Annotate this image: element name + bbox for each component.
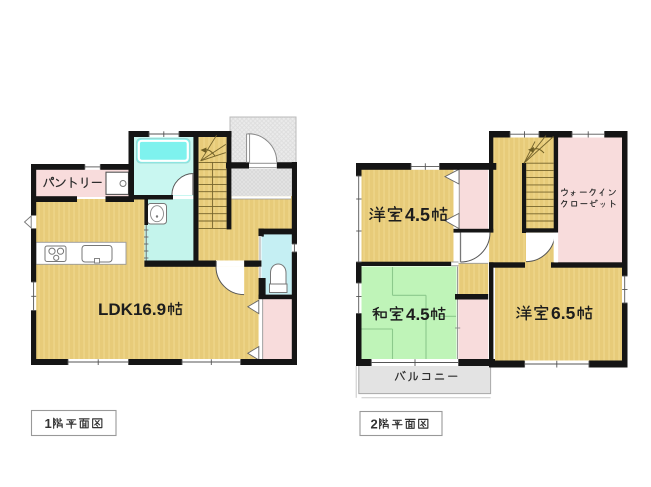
svg-text:4.5: 4.5 bbox=[405, 205, 430, 225]
svg-text:6.5: 6.5 bbox=[551, 303, 576, 323]
svg-text:LDK16.9: LDK16.9 bbox=[98, 300, 166, 319]
svg-text:4.5: 4.5 bbox=[406, 305, 430, 324]
svg-text:2: 2 bbox=[371, 417, 378, 432]
svg-text:1: 1 bbox=[45, 416, 52, 431]
